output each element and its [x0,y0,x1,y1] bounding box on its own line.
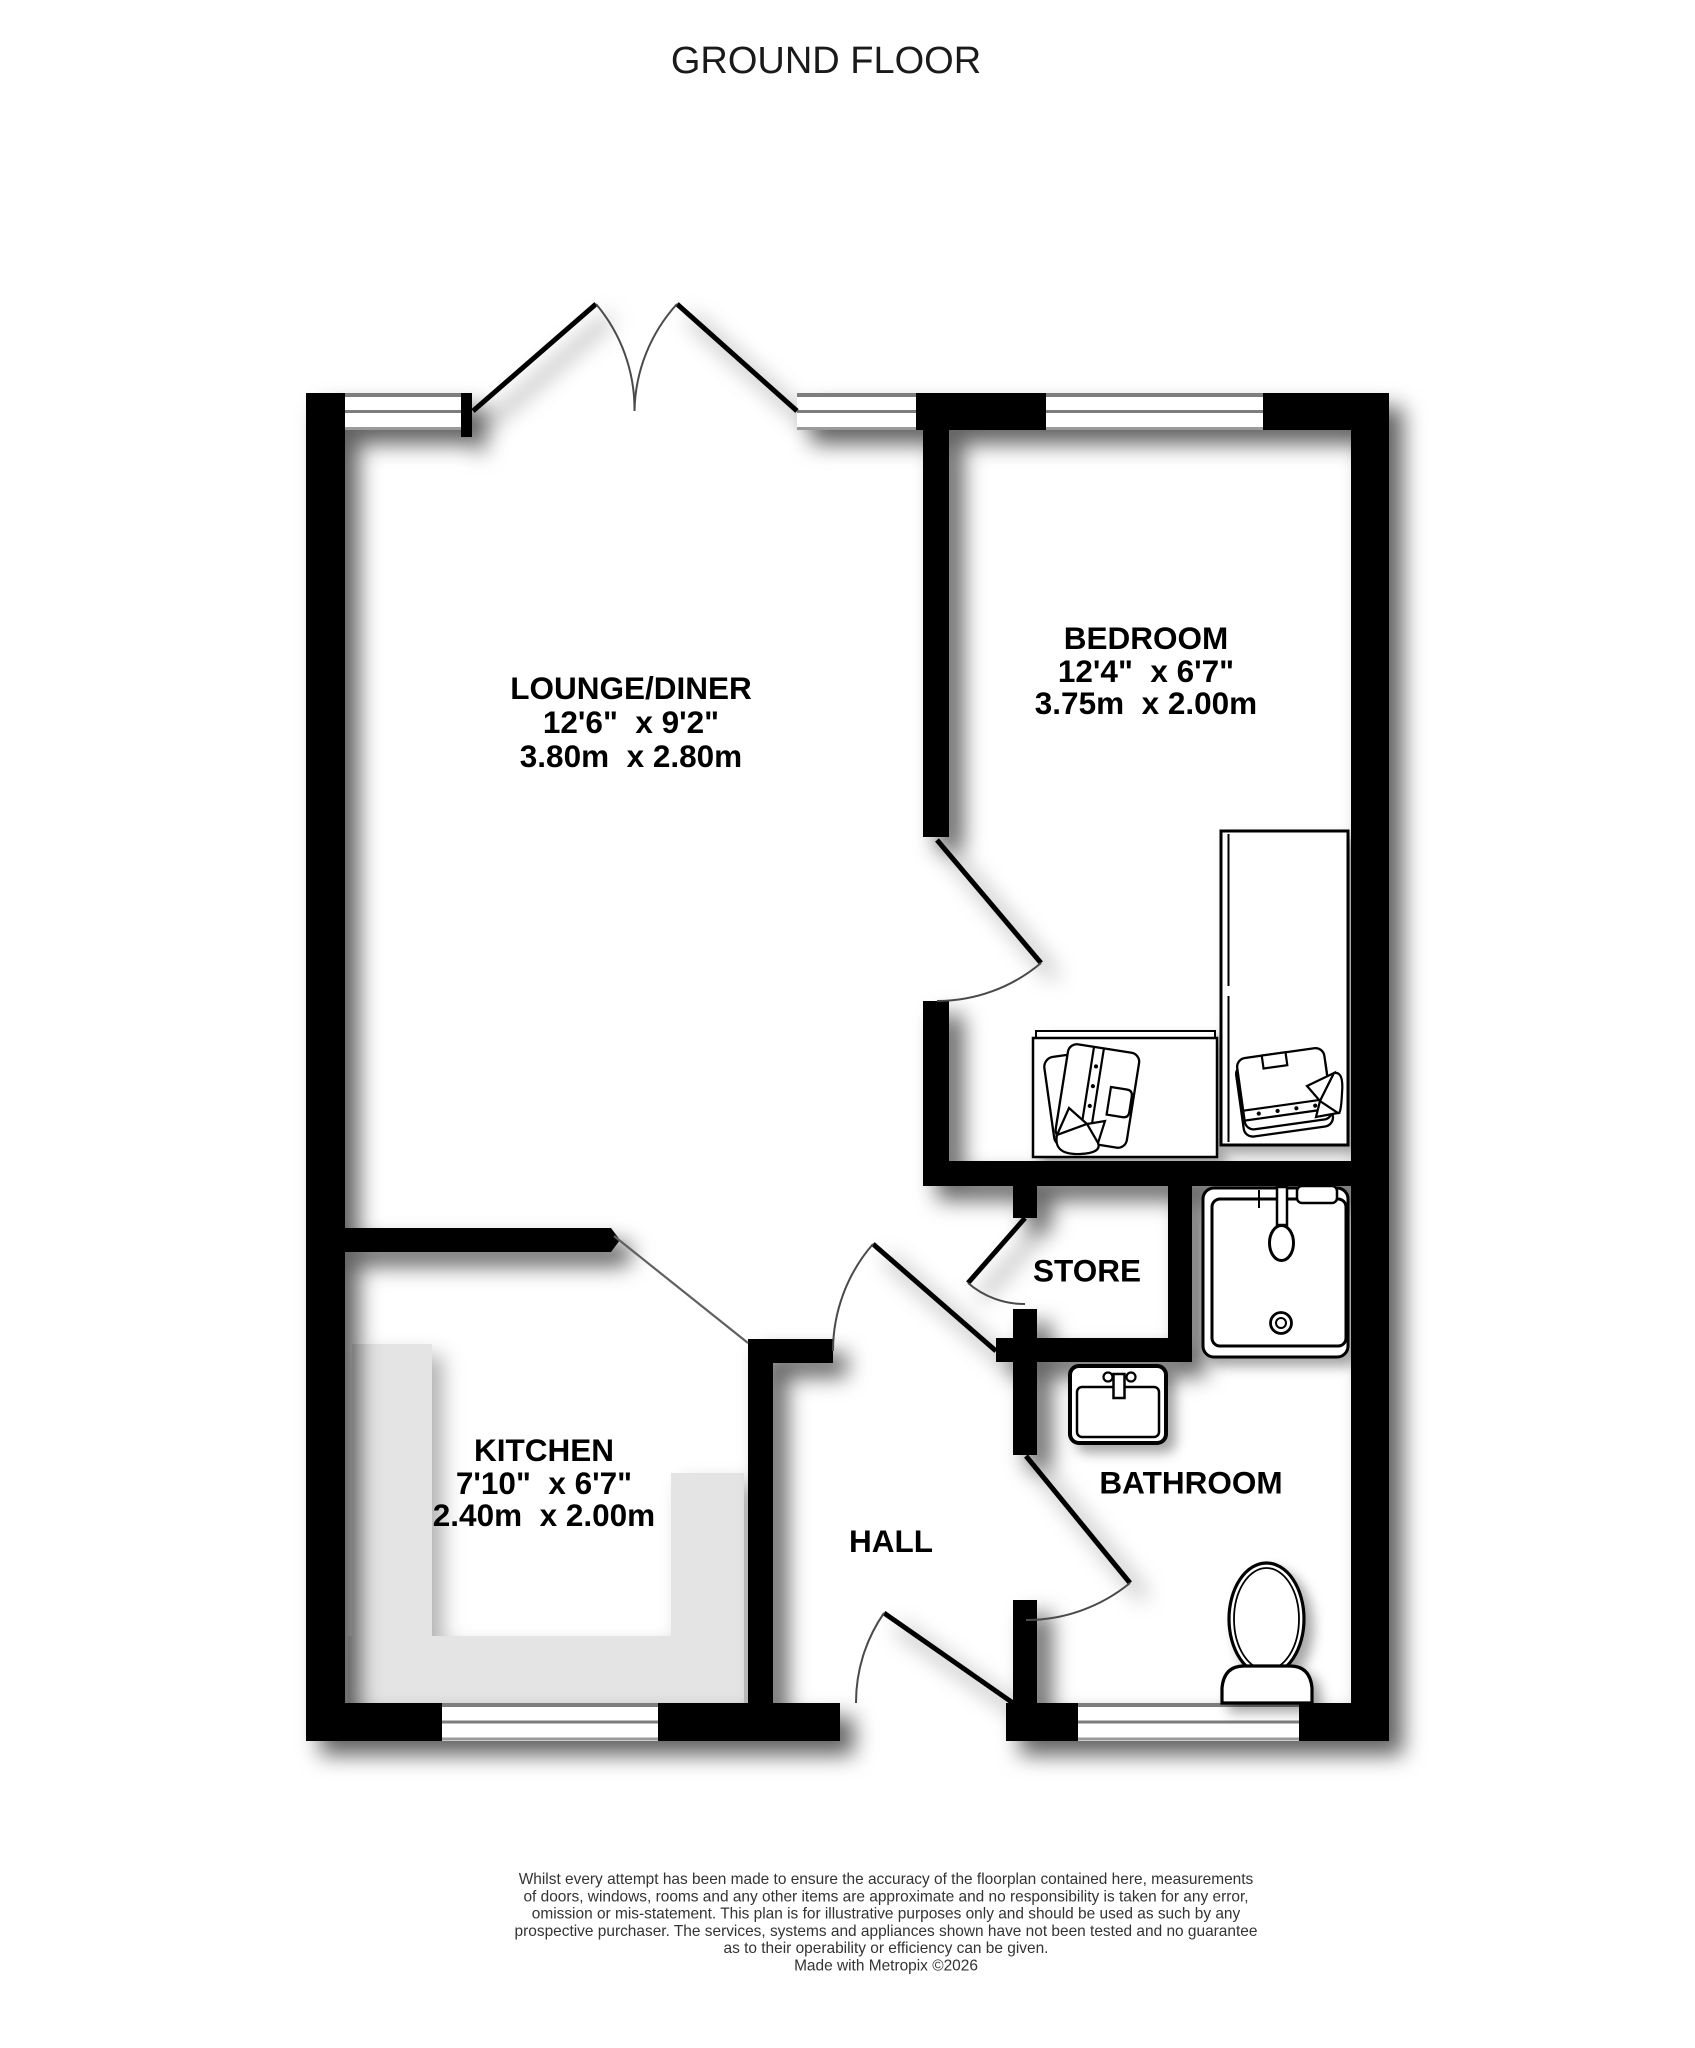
svg-text:KITCHEN: KITCHEN [474,1432,614,1468]
svg-text:prospective purchaser. The ser: prospective purchaser. The services, sys… [515,1923,1258,1940]
svg-text:2.40m x 2.00m: 2.40m x 2.00m [433,1497,655,1533]
svg-text:STORE: STORE [1033,1253,1141,1289]
svg-text:BEDROOM: BEDROOM [1064,620,1229,656]
svg-text:GROUND FLOOR: GROUND FLOOR [671,40,981,82]
svg-text:HALL: HALL [849,1523,933,1559]
svg-text:3.80m x 2.80m: 3.80m x 2.80m [520,738,742,774]
svg-text:Whilst every attempt has been: Whilst every attempt has been made to en… [519,1871,1254,1888]
svg-text:of doors, windows, rooms and a: of doors, windows, rooms and any other i… [523,1888,1248,1905]
svg-text:12'6" x 9'2": 12'6" x 9'2" [543,704,719,740]
svg-text:12'4" x 6'7": 12'4" x 6'7" [1058,653,1234,689]
svg-text:3.75m x 2.00m: 3.75m x 2.00m [1035,685,1257,721]
svg-text:LOUNGE/DINER: LOUNGE/DINER [510,670,752,706]
svg-text:Made with Metropix ©2026: Made with Metropix ©2026 [794,1958,978,1975]
svg-text:BATHROOM: BATHROOM [1099,1465,1282,1501]
svg-text:as to their operability or eff: as to their operability or efficiency ca… [724,1940,1049,1957]
svg-text:7'10" x 6'7": 7'10" x 6'7" [456,1465,632,1501]
svg-text:omission or mis-statement. Thi: omission or mis-statement. This plan is … [532,1906,1241,1923]
